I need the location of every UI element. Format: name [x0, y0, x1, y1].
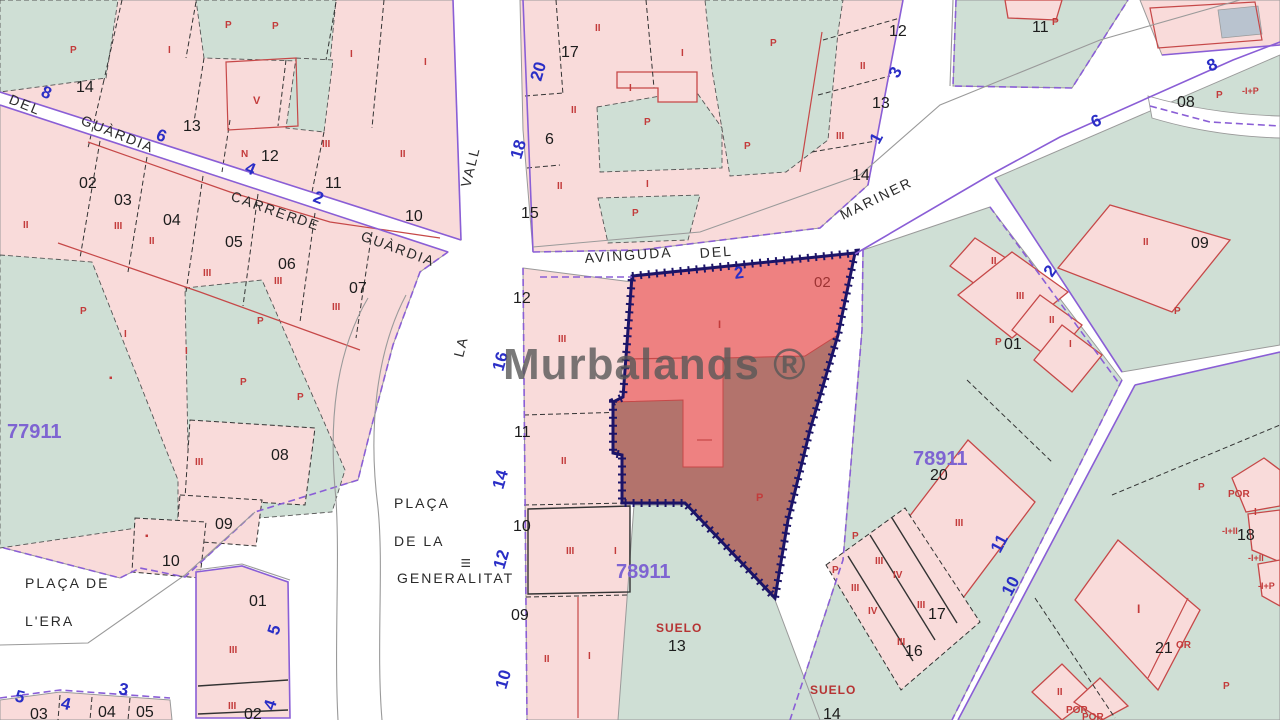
parcel-number-label: 04	[98, 704, 116, 720]
construction-code-label: II	[557, 181, 563, 192]
parcel-number-label: 07	[349, 280, 367, 297]
suelo-label: SUELO	[810, 683, 856, 697]
street-number-label: 12	[490, 548, 513, 571]
street-number-label: 10	[492, 668, 515, 691]
parcel-number-label: 10	[405, 208, 423, 225]
construction-code-label: ▪	[109, 373, 113, 384]
construction-code-label: P	[632, 208, 639, 219]
construction-code-label: P	[832, 565, 839, 576]
parcel-number-label: 01	[249, 593, 267, 610]
parcel-number-label: 11	[514, 424, 531, 441]
zone-number-label: 78911	[913, 448, 968, 470]
construction-code-label: I	[629, 83, 632, 94]
construction-code-label: V	[253, 95, 261, 107]
construction-code-label: II	[561, 456, 567, 467]
construction-code-label: III	[1016, 291, 1025, 302]
construction-code-label: P	[1174, 306, 1181, 317]
construction-code-label: P	[644, 117, 651, 128]
construction-code-label: I	[646, 179, 649, 190]
construction-code-label: P	[225, 20, 232, 31]
street-name-label: DE LA	[394, 533, 444, 549]
construction-code-label: -I+II	[1248, 553, 1264, 563]
parcel-number-label: 02	[814, 274, 831, 291]
green-parcel[interactable]	[196, 0, 336, 62]
street-number-label: 14	[489, 467, 513, 491]
zone-number-label: 77911	[7, 421, 62, 443]
construction-code-label: I	[124, 329, 127, 340]
parcel-number-label: 16	[905, 643, 923, 660]
construction-code-label: P	[744, 141, 751, 152]
construction-code-label: II	[595, 23, 601, 34]
construction-code-label: II	[860, 61, 866, 72]
parcel-number-label: 6	[545, 131, 554, 148]
construction-code-label: P	[1198, 482, 1205, 493]
construction-code-label: P	[1223, 681, 1230, 692]
parcel-number-label: III	[459, 558, 473, 568]
parcel-number-label: 15	[521, 205, 539, 222]
construction-code-label: III	[274, 276, 283, 287]
parcel-number-label: 09	[215, 516, 233, 533]
construction-code-label: P	[1216, 90, 1223, 101]
parcel-number-label: 05	[136, 704, 154, 720]
construction-code-label: I	[614, 546, 617, 557]
construction-code-label: III	[322, 139, 331, 150]
construction-code-label: I	[185, 346, 188, 357]
parcel-number-label: 01	[1004, 336, 1022, 353]
construction-code-label: P	[770, 38, 777, 49]
construction-code-label: I	[1254, 507, 1257, 518]
parcel-number-label: 06	[278, 256, 296, 273]
parcel-number-label: 21	[1155, 640, 1173, 657]
street-name-label: DEL	[699, 243, 733, 261]
parcel-number-label: 11	[1032, 19, 1049, 36]
construction-code-label: II	[991, 256, 997, 267]
parcel-number-label: 02	[244, 706, 262, 720]
suelo-label: SUELO	[656, 621, 702, 635]
parcel-number-label: 13	[872, 95, 890, 112]
parcel-number-label: 03	[114, 192, 132, 209]
parcel-number-label: 08	[1177, 94, 1195, 111]
construction-code-label: P	[756, 492, 763, 504]
construction-code-label: OR	[1176, 640, 1192, 651]
parcel-number-label: 11	[325, 175, 342, 192]
construction-code-label: I	[424, 57, 427, 68]
construction-code-label: III	[203, 268, 212, 279]
parcel-number-label: 10	[513, 518, 531, 535]
street-name-label: VALL	[457, 145, 482, 189]
construction-code-label: -I+P	[1258, 581, 1275, 591]
street-number-label: 6	[1088, 110, 1104, 131]
construction-code-label: I	[168, 45, 171, 56]
construction-code-label: I	[1069, 339, 1072, 350]
construction-code-label: III	[228, 701, 237, 712]
street-name-label: GENERALITAT	[397, 570, 514, 586]
parcel-number-label: 13	[183, 118, 201, 135]
parcel-number-label: 14	[76, 79, 94, 96]
construction-code-label: POR	[1082, 712, 1104, 720]
parcel-number-label: 17	[561, 44, 579, 61]
construction-code-label: III	[955, 518, 964, 529]
construction-code-label: P	[852, 531, 859, 542]
green-parcel[interactable]	[0, 0, 118, 92]
construction-code-label: P	[70, 45, 77, 56]
construction-code-label: II	[400, 149, 406, 160]
parcel-number-label: 14	[852, 167, 870, 184]
construction-code-label: I	[681, 48, 684, 59]
construction-code-label: I	[350, 49, 353, 60]
construction-code-label: III	[851, 583, 860, 594]
construction-code-label: P	[995, 337, 1002, 348]
construction-code-label: I	[718, 319, 721, 331]
gray-building	[1218, 6, 1262, 38]
construction-code-label: II	[1049, 315, 1055, 326]
green-parcel[interactable]	[598, 195, 700, 243]
construction-code-label: N	[241, 149, 248, 160]
zone-number-label: 78911	[616, 561, 671, 583]
construction-code-label: P	[272, 21, 279, 32]
construction-code-label: -I+P	[1242, 86, 1259, 96]
construction-code-label: IV	[893, 570, 903, 581]
construction-code-label: III	[836, 131, 845, 142]
parcel-number-label: 13	[668, 638, 686, 655]
construction-code-label: III	[897, 637, 906, 648]
construction-code-label: P	[257, 316, 264, 327]
parcel-number-label: 04	[163, 212, 181, 229]
construction-code-label: P	[240, 377, 247, 388]
parcel-number-label: 12	[889, 23, 907, 40]
parcel-number-label: 05	[225, 234, 243, 251]
parcel-number-label: 18	[1237, 527, 1255, 544]
parcel-08[interactable]	[185, 420, 315, 505]
street-name-label: PLAÇA	[394, 495, 450, 511]
construction-code-label: ▪	[145, 531, 149, 542]
construction-code-label: III	[875, 556, 884, 567]
construction-code-label: II	[23, 220, 29, 231]
construction-code-label: II	[1057, 687, 1063, 698]
construction-code-label: I	[588, 651, 591, 662]
construction-code-label: P	[80, 306, 87, 317]
construction-code-label: -I+II	[1222, 526, 1238, 536]
parcel-number-label: 09	[1191, 235, 1209, 252]
construction-code-label: I	[1137, 602, 1140, 616]
parcel-number-label: 14	[823, 706, 841, 720]
construction-code-label: III	[114, 221, 123, 232]
watermark: Murbalands ®	[503, 340, 807, 390]
construction-code-label: IV	[868, 606, 878, 617]
street-name-label: L'ERA	[25, 613, 74, 629]
parcel-number-label: 17	[928, 606, 946, 623]
street-name-label: LA	[450, 334, 471, 358]
parcel-number-label: 12	[261, 148, 279, 165]
parcel-number-label: 02	[79, 175, 97, 192]
construction-code-label: III	[917, 600, 926, 611]
parcel-number-label: 03	[30, 706, 48, 720]
construction-code-label: II	[571, 105, 577, 116]
construction-code-label: III	[229, 645, 238, 656]
block-parcel-01-column[interactable]	[196, 566, 290, 718]
construction-code-label: II	[1143, 237, 1149, 248]
construction-code-label: POR	[1228, 489, 1250, 500]
construction-code-label: II	[544, 654, 550, 665]
construction-code-label: P	[1052, 17, 1059, 28]
street-name-label: PLAÇA DE	[25, 575, 109, 591]
parcel-number-label: 10	[162, 553, 180, 570]
construction-code-label: III	[195, 457, 204, 468]
construction-code-label: P	[297, 392, 304, 403]
construction-code-label: II	[149, 236, 155, 247]
parcel-number-label: 08	[271, 447, 289, 464]
construction-code-label: III	[332, 302, 341, 313]
parcel-number-label: 12	[513, 290, 531, 307]
cadastral-map: DELGUÀRDIACARRERDEGUÀRDIAVALLLAAVINGUDAD…	[0, 0, 1280, 720]
parcel-number-label: 09	[511, 607, 529, 624]
construction-code-label: III	[566, 546, 575, 557]
